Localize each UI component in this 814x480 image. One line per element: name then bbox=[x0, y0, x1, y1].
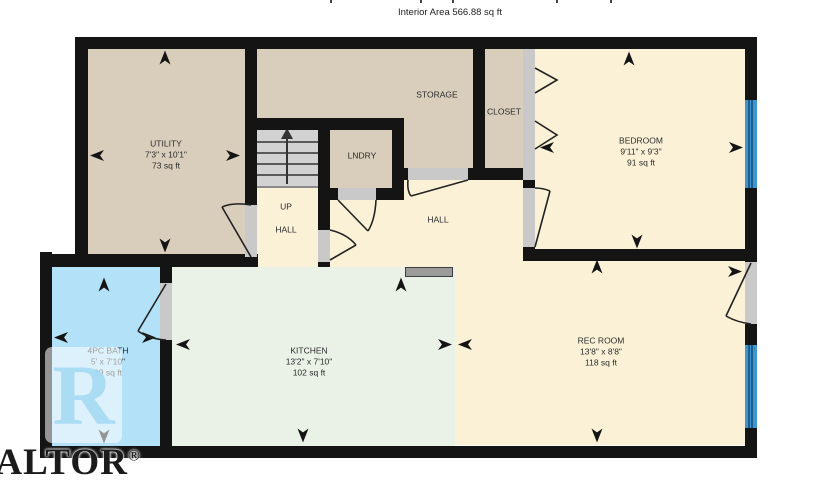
brand-text: REALTOR bbox=[0, 442, 128, 480]
wall bbox=[40, 446, 757, 458]
registered-mark: ® bbox=[128, 448, 141, 465]
room-name: LNDRY bbox=[348, 150, 377, 161]
floor-plan: Interior Area 566.88 sq ft bbox=[0, 0, 814, 480]
stair-hall-up-label: UP bbox=[280, 201, 292, 212]
storage-room-label: STORAGE bbox=[416, 89, 457, 100]
exterior-door-opening bbox=[745, 262, 757, 324]
stair-landing-edge bbox=[257, 186, 318, 188]
clipped-text-fragment bbox=[330, 0, 332, 3]
room-area: 73 sq ft bbox=[145, 161, 187, 172]
closet-door-opening bbox=[523, 49, 535, 180]
room-name: KITCHEN bbox=[286, 345, 333, 356]
storage-room-floor bbox=[404, 118, 473, 168]
stairs-up-arrow-icon bbox=[286, 138, 288, 184]
room-name: STORAGE bbox=[416, 89, 457, 100]
realtor-logo-r-icon: R bbox=[45, 347, 122, 443]
wall bbox=[75, 37, 88, 264]
storage-room-floor bbox=[257, 49, 473, 118]
room-name: UTILITY bbox=[145, 138, 187, 149]
room-dims: 13'2" x 7'10" bbox=[286, 356, 333, 367]
realtor-logo-watermark: R bbox=[45, 347, 122, 443]
room-area: 118 sq ft bbox=[578, 358, 625, 369]
clipped-text-fragment bbox=[452, 0, 454, 3]
room-area: 102 sq ft bbox=[286, 368, 333, 379]
interior-area-label: Interior Area 566.88 sq ft bbox=[398, 7, 502, 18]
door-opening bbox=[338, 188, 376, 200]
laundry-room-label: LNDRY bbox=[348, 150, 377, 161]
hall-label: HALL bbox=[427, 214, 448, 225]
wall bbox=[523, 249, 757, 261]
kitchen-counter bbox=[405, 267, 453, 277]
room-name: HALL bbox=[427, 214, 448, 225]
door-opening bbox=[160, 283, 172, 340]
up-label: UP bbox=[280, 201, 292, 212]
utility-room-label: UTILITY 7'3" x 10'1" 73 sq ft bbox=[145, 138, 187, 171]
wall bbox=[473, 49, 485, 180]
stair-hall-label: HALL bbox=[275, 224, 296, 235]
door-opening bbox=[523, 188, 535, 247]
room-dims: 13'8" x 8'8" bbox=[578, 346, 625, 357]
room-name: CLOSET bbox=[487, 106, 521, 117]
door-opening bbox=[318, 230, 330, 262]
window-frame-line bbox=[748, 345, 750, 428]
closet-label: CLOSET bbox=[487, 106, 521, 117]
room-dims: 9'11" x 9'3" bbox=[619, 146, 663, 157]
wall bbox=[75, 37, 757, 49]
room-name: BEDROOM bbox=[619, 135, 663, 146]
window-frame-line bbox=[748, 100, 750, 188]
window-frame-line bbox=[751, 345, 753, 428]
room-area: 91 sq ft bbox=[619, 158, 663, 169]
clipped-text-fragment bbox=[610, 0, 612, 3]
door-opening bbox=[408, 168, 468, 180]
room-name: REC ROOM bbox=[578, 335, 625, 346]
window-frame-line bbox=[751, 100, 753, 188]
wall bbox=[40, 254, 258, 267]
clipped-text-fragment bbox=[556, 0, 558, 3]
kitchen-label: KITCHEN 13'2" x 7'10" 102 sq ft bbox=[286, 345, 333, 378]
door-opening bbox=[245, 205, 257, 257]
bedroom-label: BEDROOM 9'11" x 9'3" 91 sq ft bbox=[619, 135, 663, 168]
room-dims: 7'3" x 10'1" bbox=[145, 149, 187, 160]
realtor-watermark-text: REALTOR® bbox=[0, 441, 141, 480]
clipped-text-fragment bbox=[420, 0, 422, 3]
rec-room-label: REC ROOM 13'8" x 8'8" 118 sq ft bbox=[578, 335, 625, 368]
room-name: HALL bbox=[275, 224, 296, 235]
